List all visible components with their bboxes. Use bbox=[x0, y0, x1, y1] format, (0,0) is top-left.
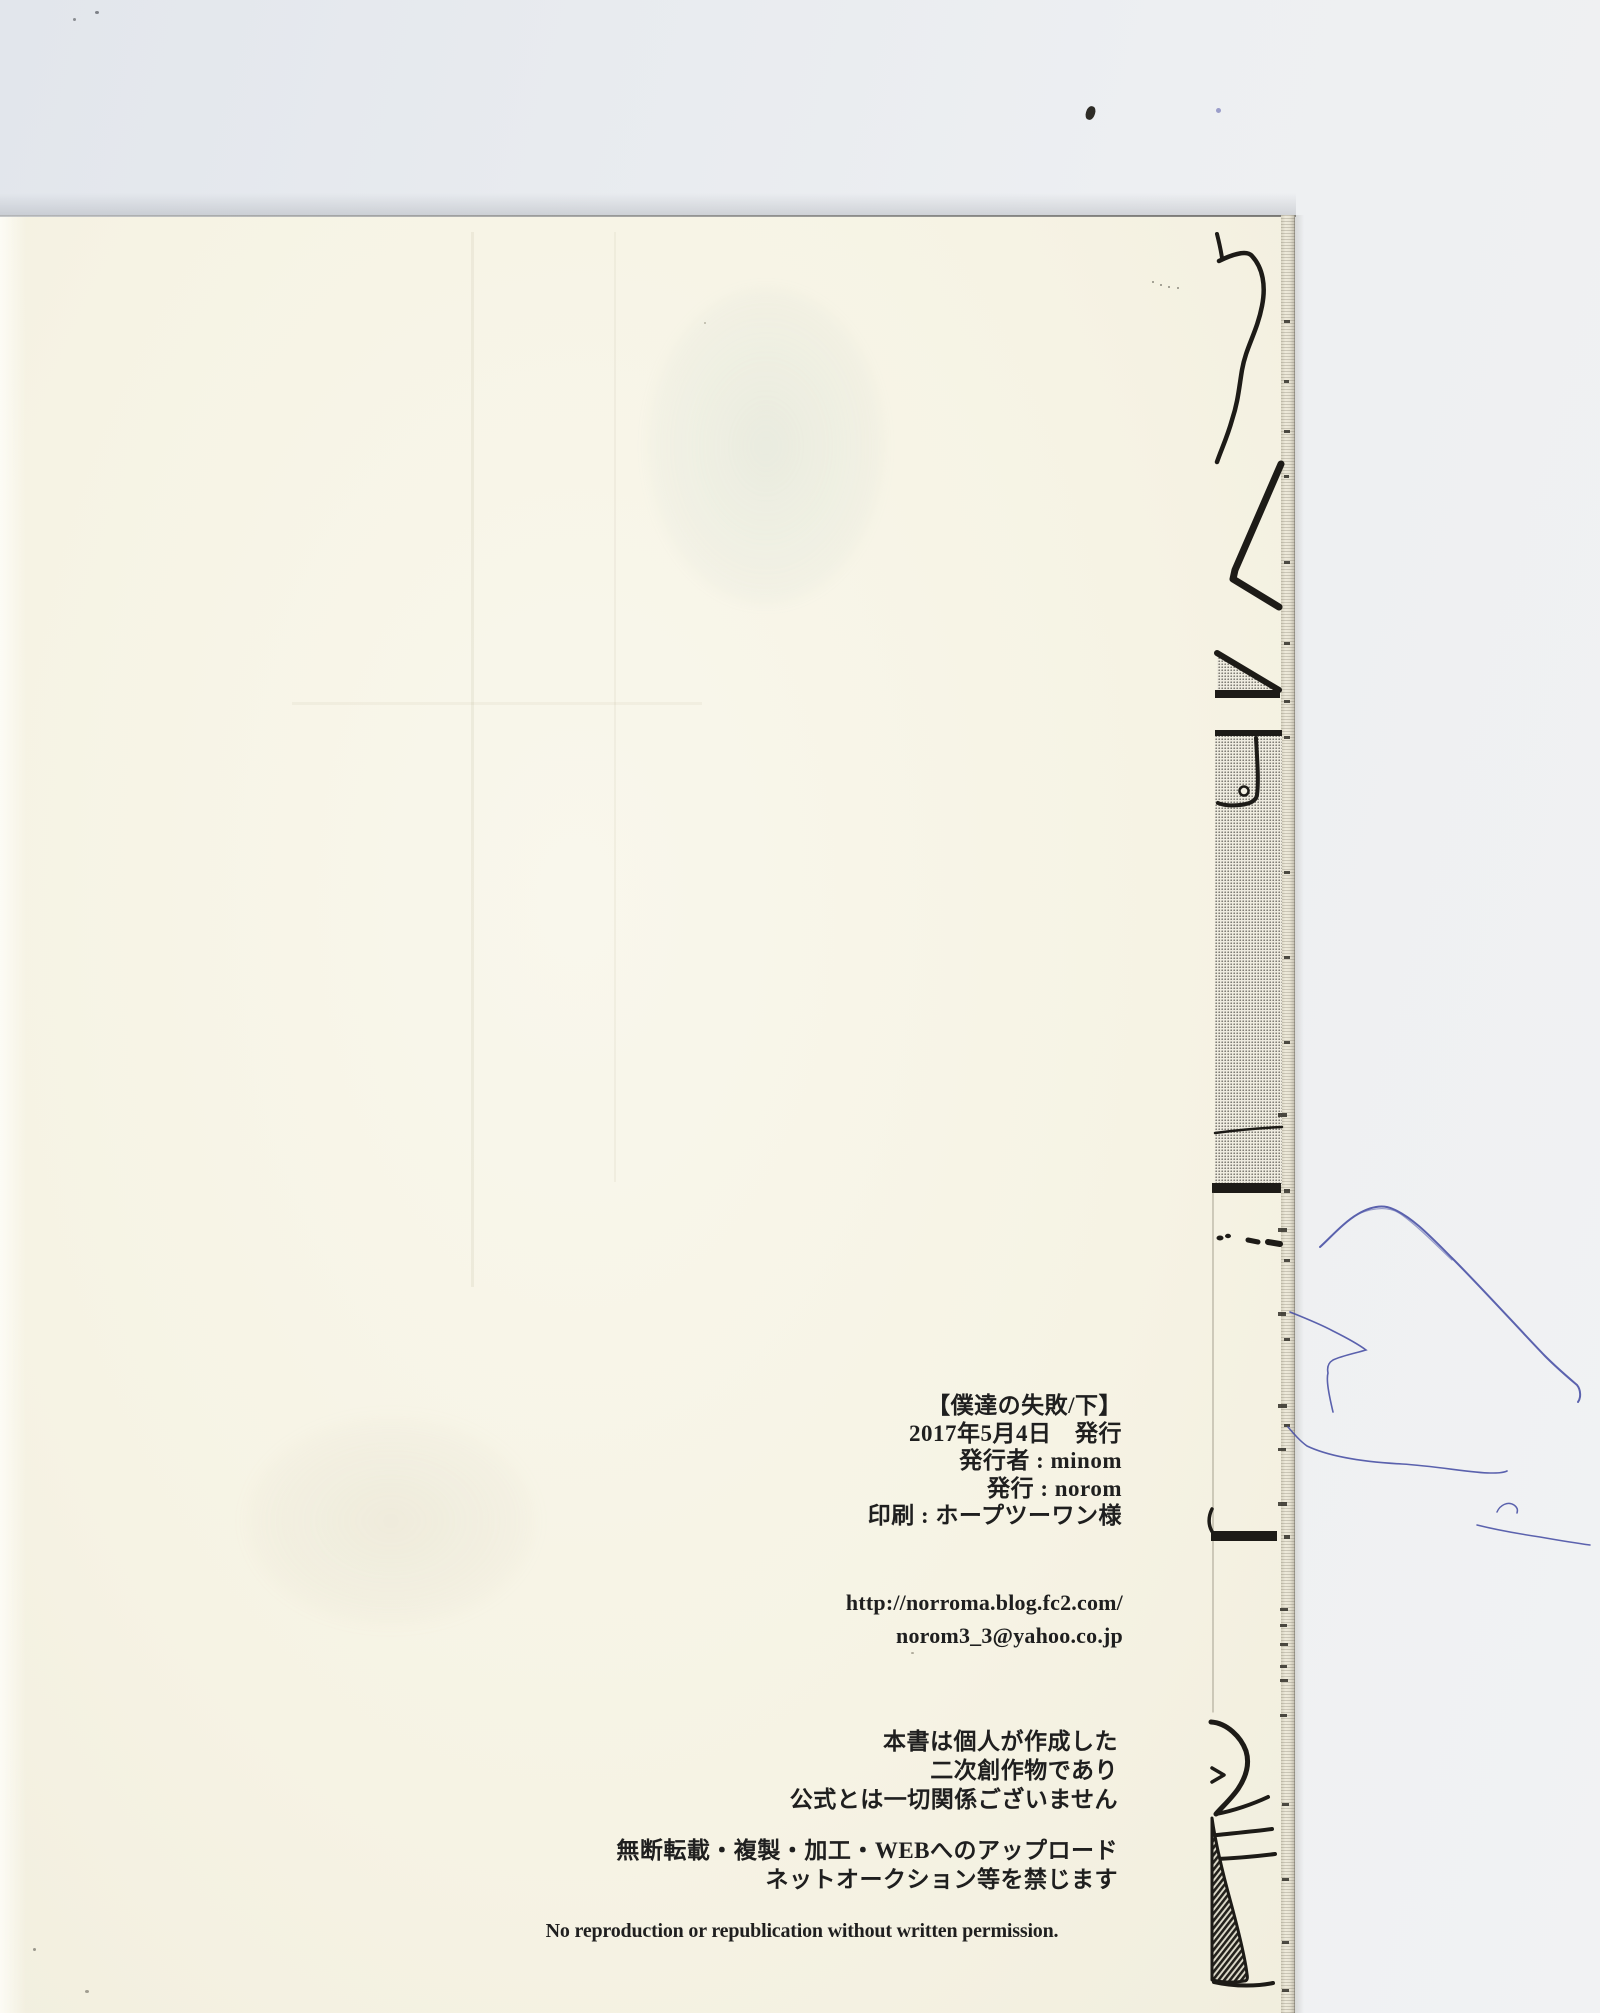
page-left-edge-highlight bbox=[0, 217, 26, 2013]
page-top-edge-line bbox=[0, 215, 1296, 217]
ink-dot bbox=[1168, 286, 1170, 288]
dust-speck bbox=[704, 322, 706, 324]
scanner-lid-shadow bbox=[0, 193, 1296, 216]
disclaimer-line: 二次創作物であり bbox=[790, 1756, 1118, 1785]
printer-line: 印刷 : ホープツーワン様 bbox=[868, 1502, 1122, 1530]
blue-pen-scribbles bbox=[1280, 1190, 1600, 1560]
email-address: norom3_3@yahoo.co.jp bbox=[846, 1619, 1123, 1652]
disclaimer-line: 本書は個人が作成した bbox=[790, 1727, 1118, 1756]
prohibition-line: ネットオークション等を禁じます bbox=[616, 1865, 1118, 1894]
prohibition-line: 無断転載・複製・加工・WEBへのアップロード bbox=[616, 1836, 1118, 1865]
prohibition-block: 無断転載・複製・加工・WEBへのアップロード ネットオークション等を禁じます bbox=[616, 1836, 1118, 1894]
contact-block: http://norroma.blog.fc2.com/ norom3_3@ya… bbox=[846, 1586, 1123, 1652]
blue-speck bbox=[1216, 108, 1221, 113]
colophon-info-block: 【僕達の失敗/下】 2017年5月4日 発行 発行者 : minom 発行 : … bbox=[868, 1392, 1122, 1530]
english-copyright-notice: No reproduction or republication without… bbox=[472, 1920, 1132, 1943]
ink-dot bbox=[1177, 287, 1179, 289]
publish-date-line: 2017年5月4日 発行 bbox=[868, 1420, 1122, 1448]
doujin-title: 【僕達の失敗/下】 bbox=[868, 1392, 1122, 1420]
dust-speck bbox=[95, 11, 99, 14]
dust-speck bbox=[85, 1990, 89, 1993]
issuer-line: 発行 : norom bbox=[868, 1475, 1122, 1503]
ink-blob bbox=[1084, 105, 1097, 121]
blog-url: http://norroma.blog.fc2.com/ bbox=[846, 1586, 1123, 1619]
scanned-doujinshi-colophon-page: 【僕達の失敗/下】 2017年5月4日 発行 発行者 : minom 発行 : … bbox=[0, 0, 1600, 2013]
dust-speck bbox=[33, 1948, 36, 1951]
ink-dot bbox=[1160, 284, 1162, 286]
dust-speck bbox=[73, 18, 76, 21]
ink-dot bbox=[1152, 281, 1154, 283]
disclaimer-block: 本書は個人が作成した 二次創作物であり 公式とは一切関係ございません bbox=[790, 1727, 1118, 1814]
dust-speck bbox=[911, 1652, 914, 1654]
disclaimer-line: 公式とは一切関係ございません bbox=[790, 1785, 1118, 1814]
publisher-line: 発行者 : minom bbox=[868, 1447, 1122, 1475]
next-page-manga-art bbox=[1200, 200, 1300, 2013]
